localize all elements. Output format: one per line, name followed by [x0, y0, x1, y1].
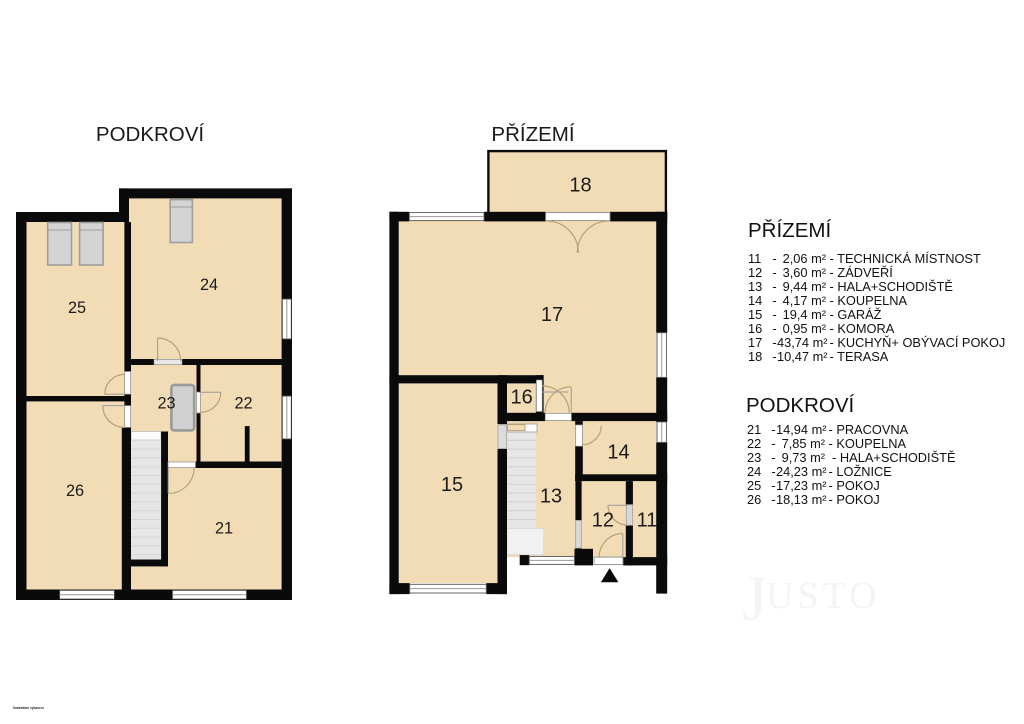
svg-text:J: J [742, 563, 767, 635]
svg-text:USTO: USTO [766, 575, 881, 617]
